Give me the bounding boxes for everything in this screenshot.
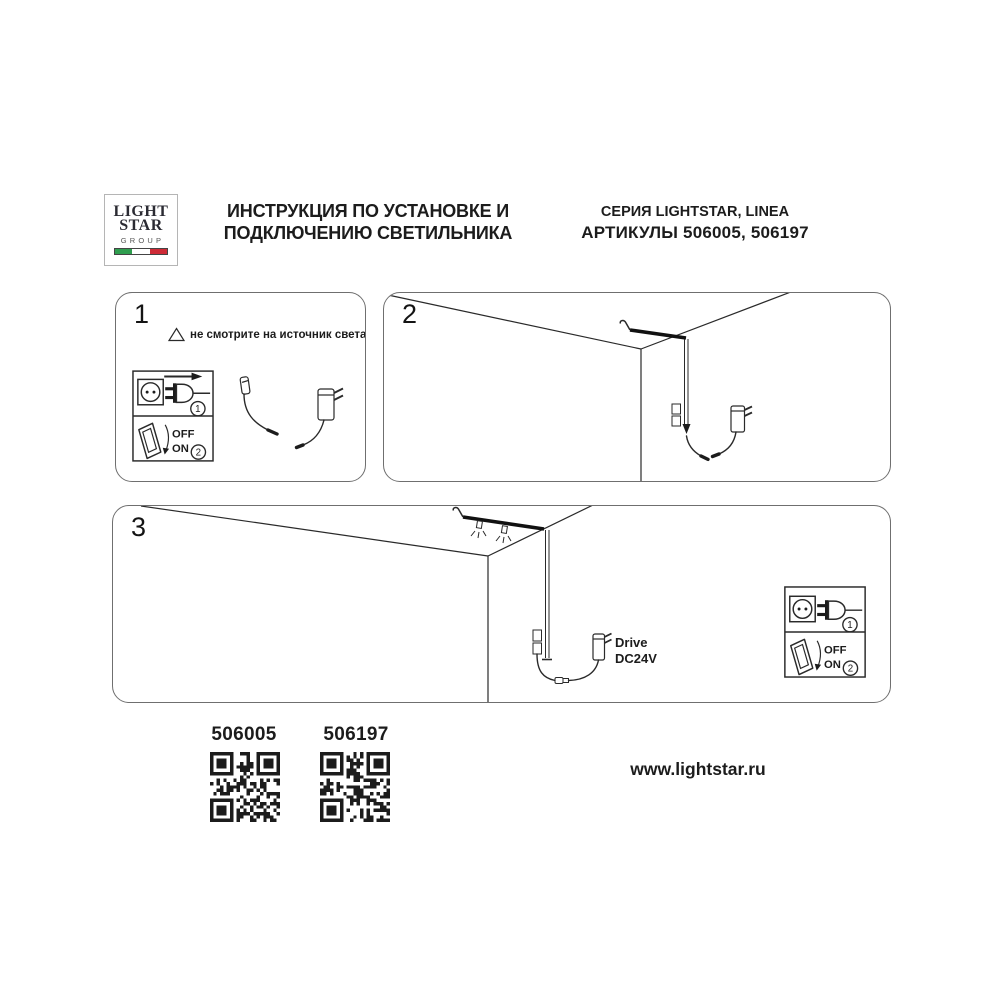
power-connection-panel: 1 OFF ON 2 bbox=[782, 586, 868, 678]
step1-panel: 1 не смотрите на источник света bbox=[115, 292, 366, 482]
luminaire-drawing bbox=[463, 517, 544, 529]
warning-row: не смотрите на источник света bbox=[168, 327, 366, 342]
plug-icon bbox=[817, 600, 862, 620]
switch-icon bbox=[791, 639, 821, 674]
svg-text:1: 1 bbox=[847, 620, 852, 631]
logo-word-star: STAR bbox=[119, 219, 163, 233]
page-title: ИНСТРУКЦИЯ ПО УСТАНОВКЕ И ПОДКЛЮЧЕНИЮ СВ… bbox=[192, 200, 544, 244]
driver-mount-drawing bbox=[672, 404, 681, 426]
adapter-drawing bbox=[593, 634, 612, 661]
plug-icon bbox=[165, 383, 210, 403]
insert-arrow-icon bbox=[164, 373, 202, 381]
svg-text:2: 2 bbox=[848, 664, 853, 675]
switch-icon bbox=[139, 423, 169, 458]
spotlight-icon bbox=[471, 521, 486, 538]
warning-triangle-icon bbox=[168, 327, 185, 342]
article-number-506005: 506005 bbox=[202, 724, 286, 746]
inline-connector-drawing bbox=[555, 678, 569, 684]
mount-bracket-drawing bbox=[453, 508, 463, 517]
step3-room-drawing: Drive DC24V bbox=[113, 506, 890, 702]
qr-code bbox=[210, 752, 280, 822]
lightstar-logo: LIGHT STAR GROUP bbox=[104, 194, 178, 266]
series-info: СЕРИЯ LIGHTSTAR, LINEA АРТИКУЛЫ 506005, … bbox=[552, 203, 838, 245]
title-line-2: ПОДКЛЮЧЕНИЮ СВЕТИЛЬНИКА bbox=[192, 222, 544, 244]
off-label: OFF bbox=[172, 428, 195, 440]
qr-code bbox=[320, 752, 390, 822]
series-line: СЕРИЯ LIGHTSTAR, LINEA bbox=[552, 203, 838, 221]
power-connection-panel: 1 OFF ON 2 bbox=[132, 369, 214, 463]
connector-cable-drawing bbox=[232, 371, 296, 457]
on-label: ON bbox=[172, 443, 189, 455]
on-label: ON bbox=[824, 659, 841, 671]
logo-word-group: GROUP bbox=[121, 236, 165, 245]
off-label: OFF bbox=[824, 645, 847, 657]
driver-mount-drawing bbox=[533, 630, 542, 654]
website-url: www.lightstar.ru bbox=[556, 759, 840, 780]
step2-room-drawing bbox=[384, 293, 890, 481]
mount-bracket-drawing bbox=[620, 321, 630, 330]
title-line-1: ИНСТРУКЦИЯ ПО УСТАНОВКЕ И bbox=[192, 200, 544, 222]
italian-flag-icon bbox=[114, 248, 168, 255]
socket-icon bbox=[790, 596, 815, 621]
luminaire-drawing bbox=[630, 330, 686, 338]
article-number-506197: 506197 bbox=[314, 724, 398, 746]
svg-text:2: 2 bbox=[196, 448, 201, 459]
instruction-sheet: LIGHT STAR GROUP ИНСТРУКЦИЯ ПО УСТАНОВКЕ… bbox=[0, 0, 1000, 1000]
step1-number: 1 bbox=[134, 299, 149, 330]
down-arrow-icon bbox=[683, 424, 691, 434]
svg-text:1: 1 bbox=[195, 404, 200, 415]
articles-line: АРТИКУЛЫ 506005, 506197 bbox=[552, 221, 838, 245]
step3-panel: 3 bbox=[112, 505, 891, 703]
spotlight-icon bbox=[496, 526, 511, 543]
drive-label-line2: DC24V bbox=[615, 651, 657, 666]
socket-icon bbox=[138, 379, 163, 404]
step2-panel: 2 bbox=[383, 292, 891, 482]
drive-label-line1: Drive bbox=[615, 635, 648, 650]
power-adapter-drawing bbox=[294, 375, 360, 463]
adapter-drawing bbox=[713, 406, 753, 457]
warning-text: не смотрите на источник света bbox=[190, 329, 366, 341]
